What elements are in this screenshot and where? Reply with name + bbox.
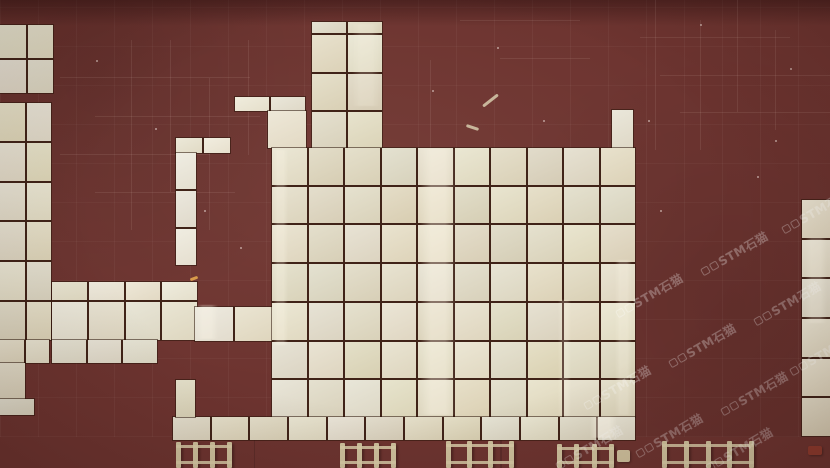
marble-tile (0, 222, 25, 260)
trestle-rail (557, 447, 614, 450)
marble-tile (162, 282, 197, 300)
paint-speck (543, 120, 545, 122)
marble-tile (601, 148, 636, 185)
tile-block-step-bar (235, 97, 305, 111)
marble-tile (52, 302, 87, 340)
wooden-trestle (662, 441, 754, 468)
marble-tile (27, 262, 52, 300)
tile-block-lone-tile (612, 110, 633, 148)
paint-speck (155, 128, 157, 130)
marble-tile (272, 148, 307, 185)
marble-tile (560, 417, 597, 440)
scratch-mark (95, 192, 235, 193)
scratch-mark (775, 30, 776, 130)
marble-tile (418, 187, 453, 224)
marble-tile (418, 225, 453, 262)
marble-tile (382, 225, 417, 262)
marble-tile (491, 342, 526, 379)
marble-tile (491, 148, 526, 185)
marble-tile (455, 342, 490, 379)
marble-tile (348, 74, 382, 110)
marble-tile (27, 103, 52, 141)
marble-tile (564, 380, 599, 417)
scratch-mark (95, 116, 260, 117)
marble-tile (88, 340, 122, 363)
marble-tile (802, 200, 830, 238)
marble-tile (312, 22, 346, 33)
paint-speck (240, 247, 242, 249)
marble-tile (366, 417, 403, 440)
trestle-rail (557, 461, 614, 464)
marble-tile (345, 148, 380, 185)
marble-tile (528, 342, 563, 379)
marble-tile (235, 307, 273, 341)
tile-block-connector-tile (176, 380, 195, 417)
marble-tile (250, 417, 287, 440)
marble-tile (528, 264, 563, 301)
marble-tile (272, 187, 307, 224)
marble-tile (482, 417, 519, 440)
scratch-mark (680, 112, 830, 113)
scratch-mark (60, 77, 250, 78)
scratch-mark (430, 60, 431, 150)
marble-tile (491, 303, 526, 340)
marble-tile (345, 264, 380, 301)
tile-block-bottom-row (173, 417, 635, 440)
scratch-mark (131, 40, 132, 230)
marble-tile (52, 282, 87, 300)
marble-tile (802, 279, 830, 317)
marble-tile (28, 25, 54, 58)
marble-tile (601, 303, 636, 340)
wooden-trestle (176, 442, 232, 468)
marble-tile (0, 363, 25, 399)
marble-tile (564, 264, 599, 301)
paint-speck (775, 140, 777, 142)
tile-block-left-step-1 (0, 340, 49, 363)
paint-speck (497, 47, 499, 49)
paint-speck (432, 90, 434, 92)
marble-tile (601, 342, 636, 379)
marble-tile (0, 399, 34, 415)
marble-tile (802, 319, 830, 357)
tile-block-step-strip (268, 111, 306, 148)
scratch-mark (660, 75, 830, 76)
marble-tile (235, 97, 269, 111)
marble-tile (27, 183, 52, 221)
marble-tile (491, 380, 526, 417)
marble-tile (418, 380, 453, 417)
marble-tile (418, 148, 453, 185)
marble-tile (126, 302, 161, 340)
marble-tile (348, 35, 382, 72)
marble-tile (312, 35, 346, 72)
marble-tile (162, 302, 197, 340)
marble-tile (212, 417, 249, 440)
marble-tile (345, 380, 380, 417)
marble-tile (802, 240, 830, 278)
marble-tile (382, 264, 417, 301)
paint-speck (757, 176, 759, 178)
marble-tile (564, 342, 599, 379)
marble-tile (309, 303, 344, 340)
marble-tile (272, 264, 307, 301)
marble-tile (272, 225, 307, 262)
tile-block-main-field (272, 148, 635, 417)
marble-tile (528, 187, 563, 224)
concrete-seam (254, 440, 255, 468)
marble-tile (0, 143, 25, 181)
tile-block-right-strip (802, 200, 830, 436)
marble-tile (382, 342, 417, 379)
marble-tile (328, 417, 365, 440)
tile-block-left-step-3 (0, 399, 34, 415)
marble-tile (528, 380, 563, 417)
marble-tile (564, 187, 599, 224)
object-red-debris (808, 446, 822, 455)
tile-block-mid-arm (195, 307, 272, 341)
marble-tile (348, 112, 382, 148)
marble-tile (89, 302, 124, 340)
marble-tile (309, 225, 344, 262)
marble-tile (802, 359, 830, 397)
wooden-trestle (446, 441, 514, 468)
marble-tile (0, 262, 25, 300)
marble-tile (601, 264, 636, 301)
marble-tile (455, 264, 490, 301)
trestle-rail (446, 461, 514, 464)
tile-block-mid-block-bottom (52, 340, 157, 363)
paint-speck (700, 24, 702, 26)
marble-tile (455, 225, 490, 262)
marble-tile (312, 74, 346, 110)
marble-tile (444, 417, 481, 440)
marble-tile (601, 380, 636, 417)
marble-tile (0, 103, 25, 141)
marble-tile (195, 307, 233, 341)
scratch-mark (737, 0, 738, 112)
tile-block-left-upper-block (0, 25, 53, 93)
marble-tile (564, 148, 599, 185)
marble-tile (289, 417, 326, 440)
paint-speck (660, 210, 662, 212)
marble-tile (176, 229, 196, 265)
trestle-rail (340, 461, 396, 464)
marble-tile (528, 148, 563, 185)
marble-tile (455, 303, 490, 340)
marble-tile (272, 303, 307, 340)
marble-tile (598, 417, 635, 440)
marble-tile (176, 380, 195, 417)
trestle-rail (446, 444, 514, 447)
marble-tile (27, 222, 52, 260)
marble-tile (405, 417, 442, 440)
tile-block-mid-block (52, 282, 197, 340)
marble-tile (802, 398, 830, 436)
marble-tile (564, 225, 599, 262)
tile-block-ell-bar (176, 138, 230, 153)
marble-tile (309, 342, 344, 379)
paint-speck (648, 120, 650, 122)
marble-tile (28, 60, 54, 93)
marble-tile (26, 340, 50, 363)
marble-tile (418, 264, 453, 301)
scratch-mark (500, 58, 590, 59)
marble-tile (345, 225, 380, 262)
marble-tile (268, 111, 306, 148)
marble-tile (612, 110, 633, 148)
marble-tile (52, 340, 86, 363)
marble-tile (312, 112, 346, 148)
trestle-rail (662, 444, 754, 447)
scratch-mark (655, 0, 656, 150)
marble-tile (126, 282, 161, 300)
marble-tile (272, 342, 307, 379)
marble-tile (0, 302, 25, 340)
scratch-mark (700, 20, 701, 150)
marble-tile (176, 138, 202, 153)
marble-tile (564, 303, 599, 340)
marble-tile (176, 153, 196, 189)
floor-photo: STM石猫STM石猫STM石猫STM石猫STM石猫STM石猫STM石猫STM石猫… (0, 0, 830, 468)
paint-speck (204, 210, 206, 212)
paint-speck (96, 60, 98, 62)
marble-tile (345, 303, 380, 340)
marble-tile (348, 22, 382, 33)
marble-tile (123, 340, 157, 363)
marble-tile (491, 187, 526, 224)
marble-tile (601, 187, 636, 224)
marble-tile (272, 380, 307, 417)
trestle-rail (662, 461, 754, 464)
marble-tile (382, 303, 417, 340)
tile-block-left-main-block (0, 103, 51, 340)
marble-tile (601, 225, 636, 262)
marble-tile (173, 417, 210, 440)
marble-tile (309, 148, 344, 185)
paint-speck (790, 68, 792, 70)
wooden-trestle (340, 443, 396, 468)
object-wood-stake (617, 450, 630, 462)
trestle-rail (340, 446, 396, 449)
marble-tile (0, 60, 26, 93)
marble-tile (309, 380, 344, 417)
marble-tile (27, 302, 52, 340)
marble-tile (309, 187, 344, 224)
marble-tile (382, 380, 417, 417)
trestle-rail (176, 445, 232, 448)
marble-tile (455, 148, 490, 185)
marble-tile (382, 148, 417, 185)
marble-tile (0, 25, 26, 58)
marble-tile (455, 380, 490, 417)
marble-tile (455, 187, 490, 224)
scratch-mark (460, 20, 580, 21)
marble-tile (176, 191, 196, 227)
marble-tile (89, 282, 124, 300)
marble-tile (521, 417, 558, 440)
marble-tile (491, 225, 526, 262)
marble-tile (271, 97, 305, 111)
scratch-mark (640, 37, 790, 38)
tile-block-tower (312, 22, 382, 148)
wooden-trestle (557, 444, 614, 468)
trestle-rail (176, 461, 232, 464)
marble-tile (27, 143, 52, 181)
marble-tile (382, 187, 417, 224)
marble-tile (204, 138, 230, 153)
marble-tile (345, 342, 380, 379)
marble-tile (528, 225, 563, 262)
tile-block-ell-strip (176, 153, 196, 265)
marble-tile (418, 342, 453, 379)
marble-tile (528, 303, 563, 340)
marble-tile (309, 264, 344, 301)
marble-tile (0, 183, 25, 221)
marble-tile (0, 340, 24, 363)
marble-tile (418, 303, 453, 340)
tile-block-left-step-2 (0, 363, 25, 399)
marble-tile (345, 187, 380, 224)
marble-tile (491, 264, 526, 301)
